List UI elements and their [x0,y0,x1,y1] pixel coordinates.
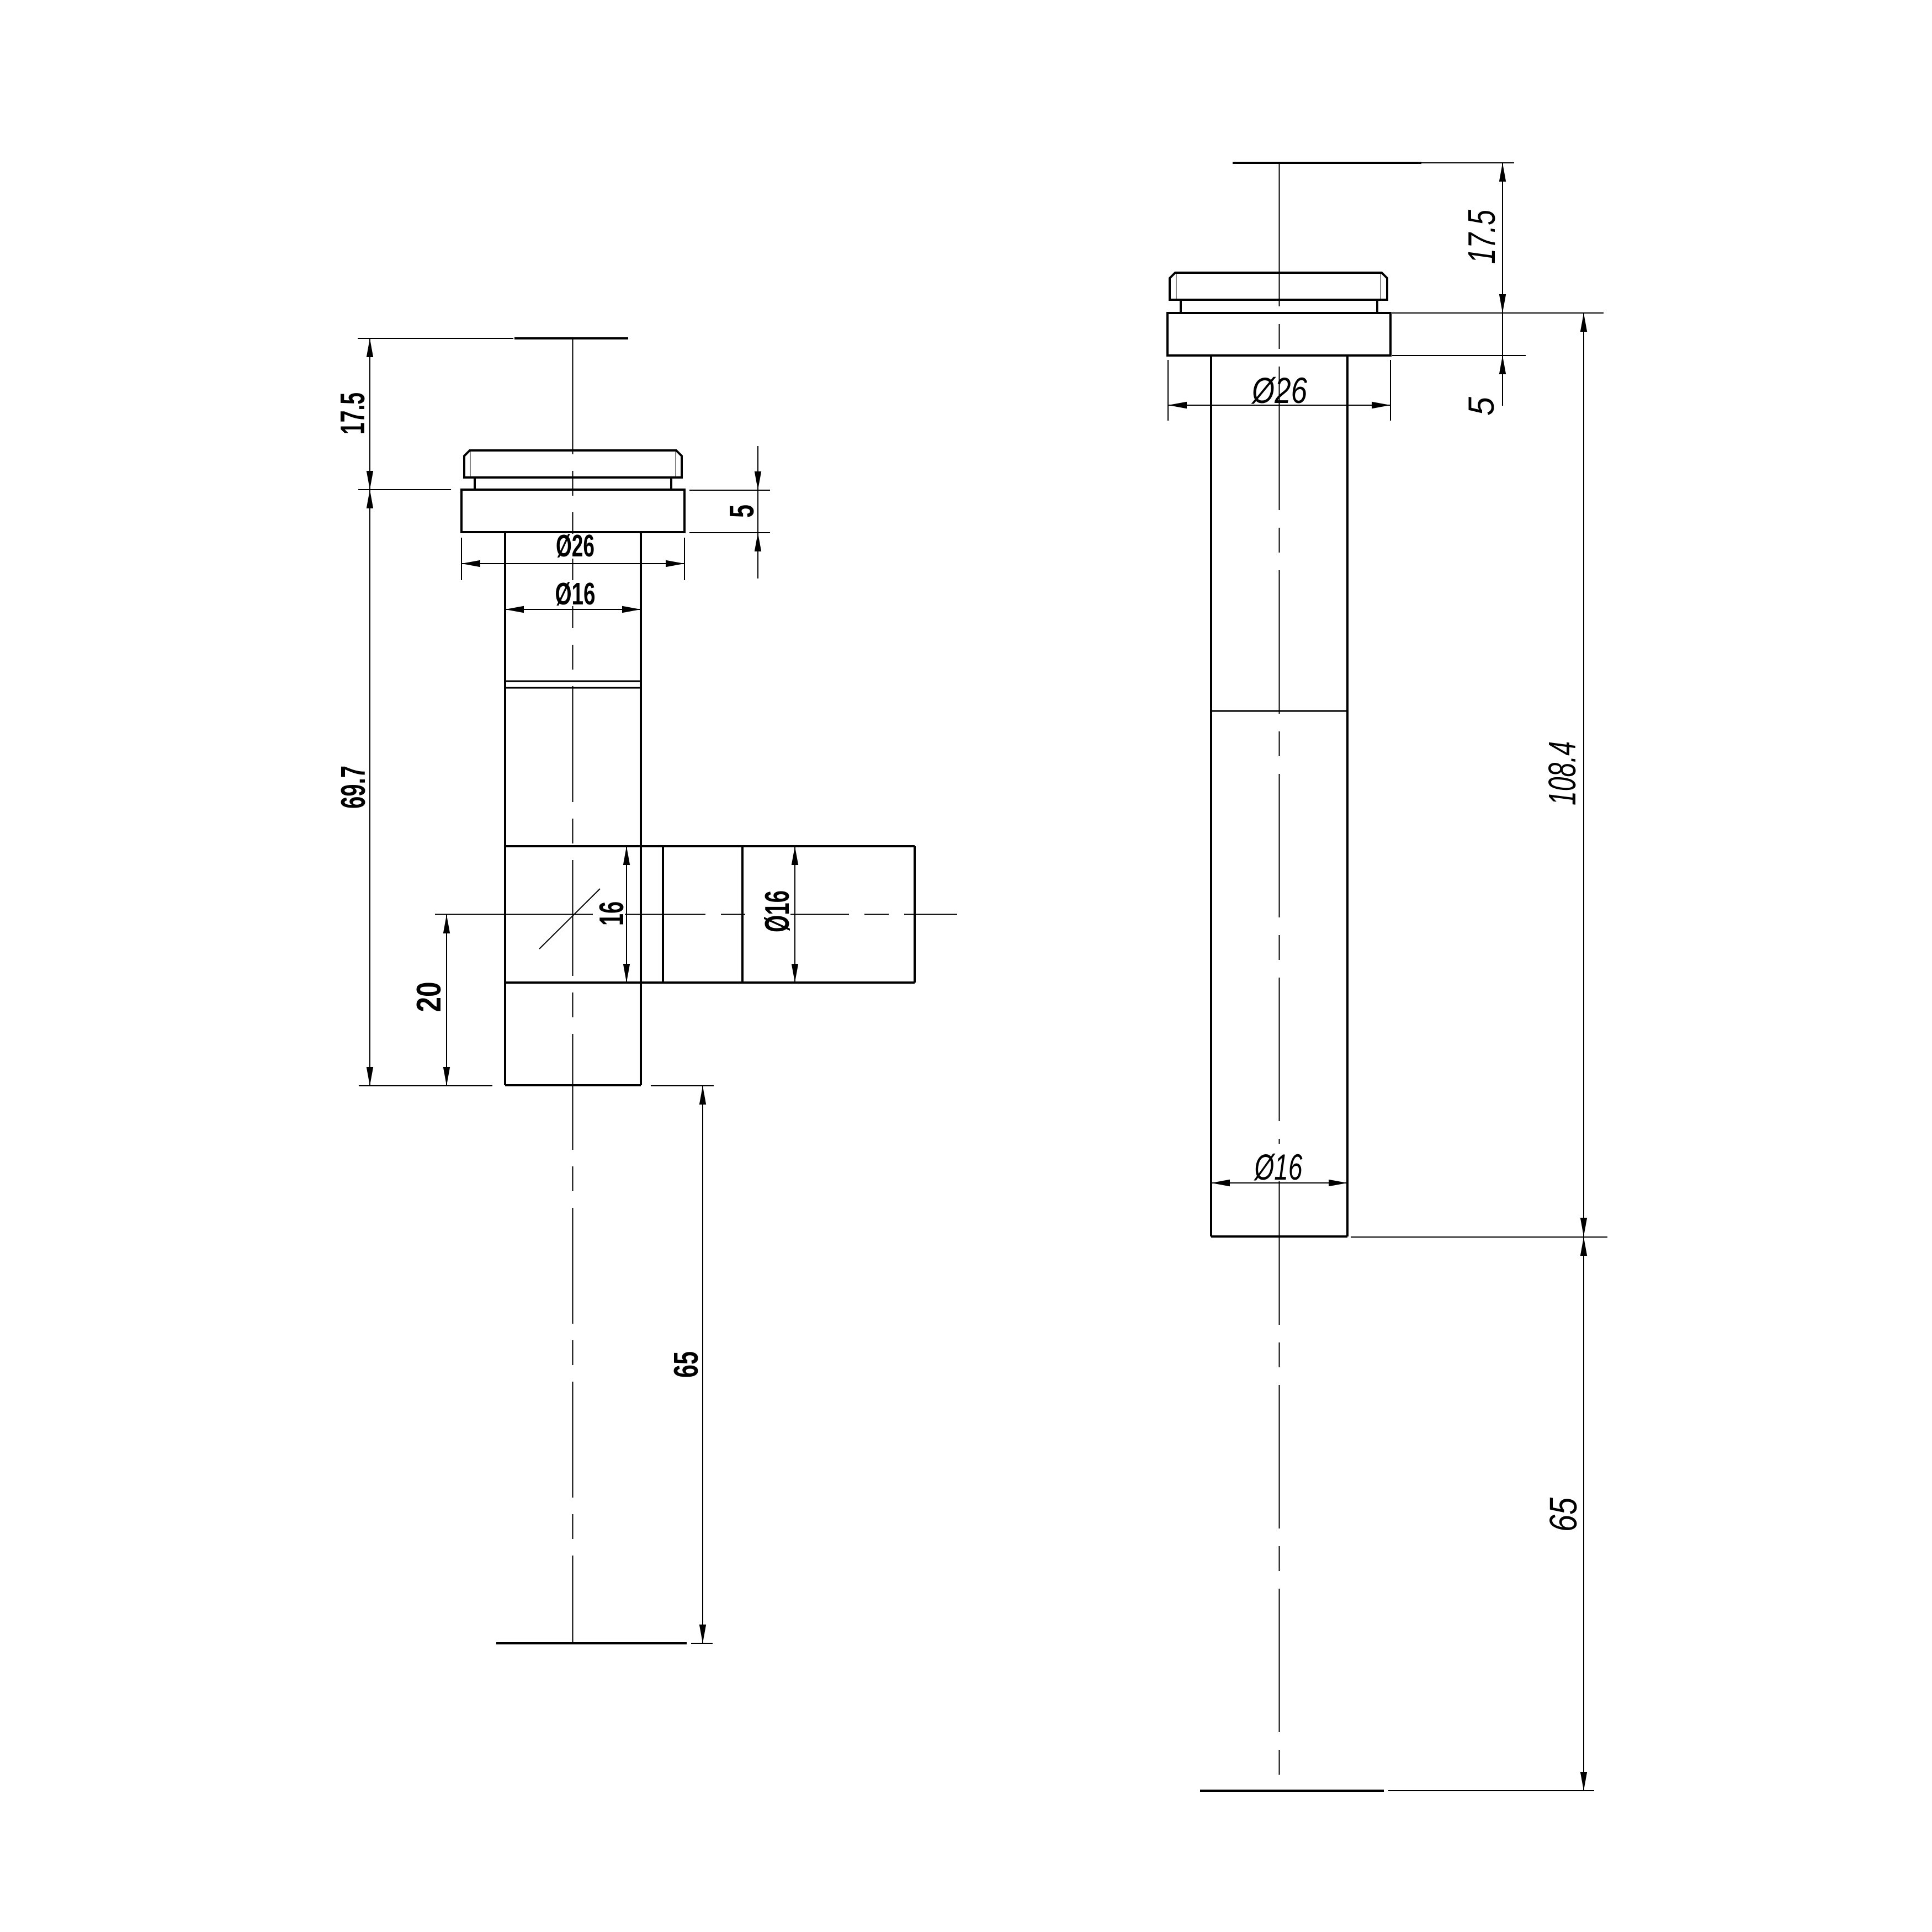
svg-text:Ø16: Ø16 [758,890,797,932]
svg-text:17.5: 17.5 [334,392,372,434]
svg-text:Ø16: Ø16 [1254,1147,1303,1187]
svg-text:17.5: 17.5 [1460,209,1503,264]
svg-text:5: 5 [1461,397,1501,416]
svg-text:16: 16 [593,901,631,926]
svg-text:Ø26: Ø26 [1251,370,1307,411]
svg-text:65: 65 [1542,1497,1585,1532]
svg-text:69.7: 69.7 [335,766,373,809]
svg-text:65: 65 [667,1351,705,1378]
svg-text:Ø16: Ø16 [555,576,596,612]
svg-text:5: 5 [723,505,761,518]
svg-text:Ø26: Ø26 [556,528,595,564]
svg-text:108.4: 108.4 [1541,741,1584,805]
svg-text:20: 20 [410,982,448,1012]
